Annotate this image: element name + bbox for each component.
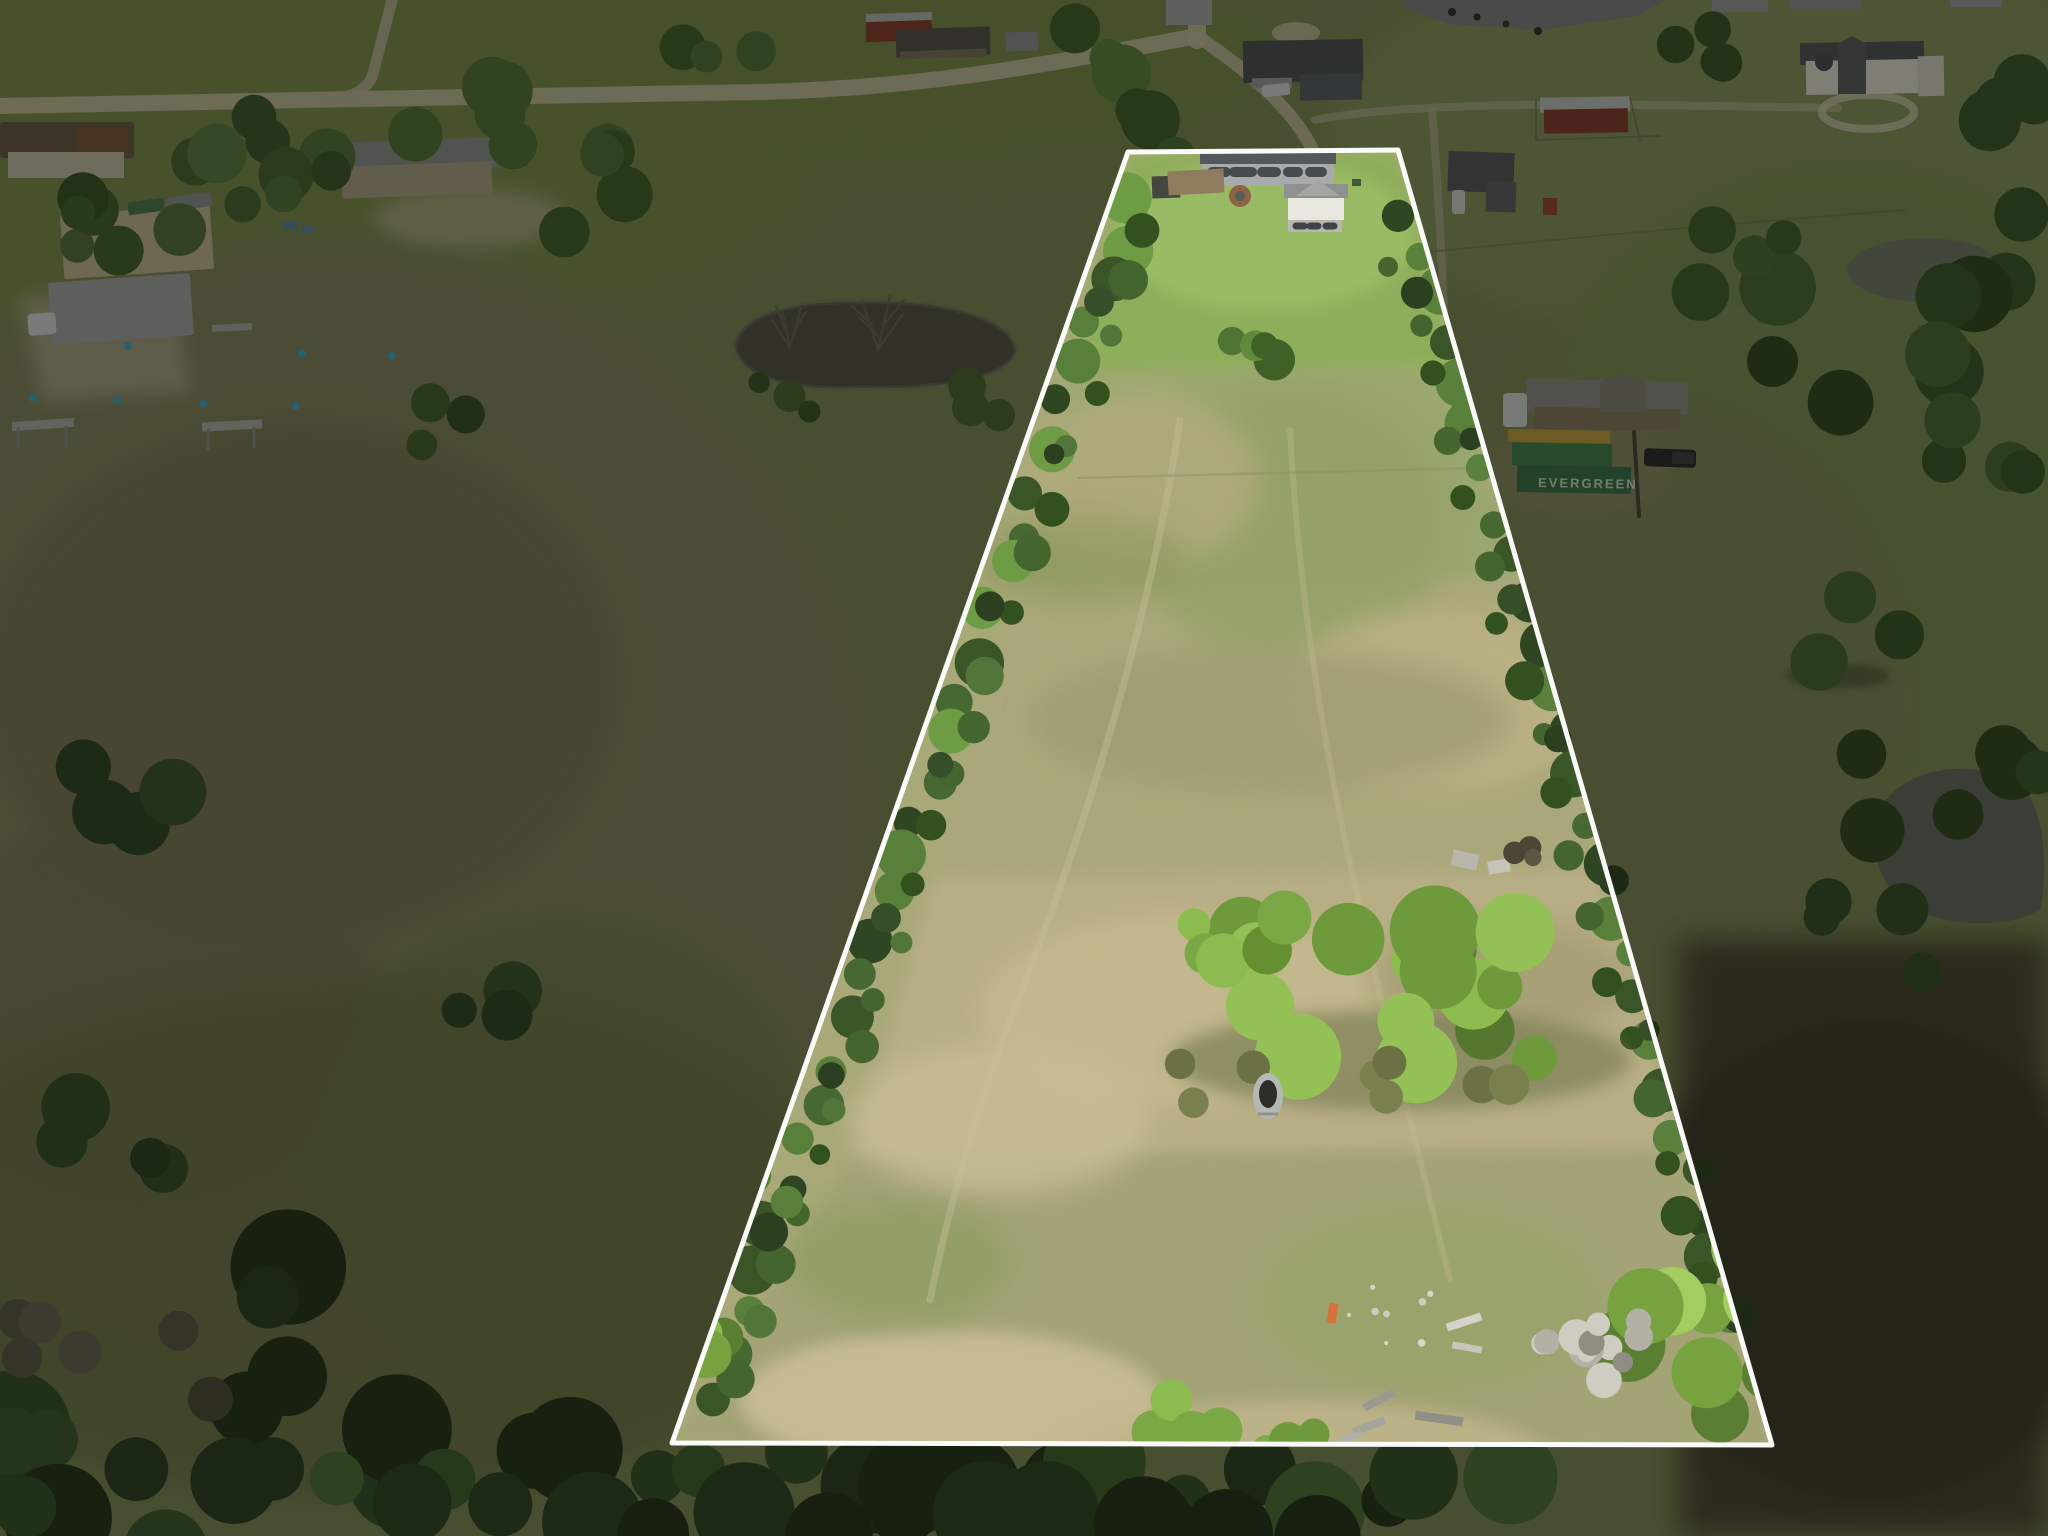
hedge-west-inside-2-tree: [966, 657, 1004, 695]
hedge-east-inside-2-tree: [1485, 612, 1508, 635]
brush-center-dark-tree: [1165, 1049, 1195, 1079]
hedge-east-inside-2-tree: [1420, 360, 1445, 385]
hedge-east-inside-2-tree: [1475, 552, 1505, 582]
hedge-west-inside-2-tree: [1100, 325, 1122, 347]
debris-specks-tree: [1427, 1291, 1433, 1297]
hedge-east-inside-tree: [1382, 200, 1414, 232]
trees-center-left-tree: [1196, 934, 1250, 988]
hedge-east-inside-2-tree: [1434, 427, 1462, 455]
debris-specks-tree: [1370, 1285, 1375, 1290]
hedge-west-outside-tree: [975, 591, 1005, 621]
hedge-west-inside-2-tree: [1014, 534, 1051, 571]
trees-center-cluster-tree: [1476, 893, 1555, 972]
hedge-east-inside-2-tree: [1410, 315, 1432, 337]
rubble-pile-tree: [1587, 1313, 1610, 1336]
hedge-west-inside-2-tree: [845, 1030, 879, 1064]
hedge-west-inside-2-tree: [1035, 492, 1070, 527]
debris-specks-tree: [1418, 1339, 1426, 1347]
rubble-pile-tree: [1534, 1329, 1560, 1355]
trees-center-cluster-tree: [1378, 993, 1435, 1050]
hedge-west-inside-2-tree: [822, 1098, 846, 1122]
hedge-west-inside-2-tree: [756, 1244, 796, 1284]
hedge-east-outside-tree: [1401, 277, 1433, 309]
hedge-west-inside-2-tree: [901, 873, 925, 897]
debris-specks-tree: [1384, 1341, 1388, 1345]
hedge-east-inside-2-tree: [1450, 485, 1475, 510]
rubble-pile-tree: [1613, 1352, 1633, 1372]
hedge-west-inside-2-tree: [916, 810, 947, 841]
trash-bin: [1352, 179, 1361, 186]
brush-center-dark-tree: [1489, 1064, 1530, 1105]
brush-center-dark-tree: [1369, 1080, 1403, 1114]
hedge-west-inside-2-tree: [958, 711, 990, 743]
hedge-west-outside-tree: [1084, 287, 1114, 317]
debris-specks-tree: [1383, 1311, 1390, 1318]
hedge-west-inside-2-tree: [861, 988, 885, 1012]
patch-tan-4: [850, 1045, 1150, 1195]
hedge-west-outside-tree: [818, 1062, 845, 1089]
hedge-west-inside-tree: [782, 1123, 814, 1155]
hedge-west-outside-tree: [871, 903, 901, 933]
hedge-west-inside-2-tree: [810, 1144, 831, 1165]
trees-se-corner-tree: [1672, 1337, 1743, 1408]
hedge-west-outside-tree: [749, 1212, 788, 1251]
debris-dark-mid-tree: [1524, 849, 1541, 866]
carport-roof: [1167, 169, 1224, 196]
hedge-west-outside-tree: [1044, 444, 1064, 464]
hedge-west-inside-2-tree: [743, 1305, 776, 1338]
hedge-east-inside-2-tree: [1576, 902, 1604, 930]
hedge-west-inside-2-tree: [891, 932, 913, 954]
trees-parcel-upper-tree: [1251, 332, 1278, 359]
fire-pit: [1235, 191, 1245, 201]
hedge-east-inside-2-tree: [1592, 967, 1622, 997]
patch-green-low-1: [785, 1200, 1015, 1324]
hedge-west-outside-tree: [927, 752, 953, 778]
tree-w-inside-single-tree: [771, 1186, 804, 1219]
hedge-east-inside-2-tree: [1554, 840, 1584, 870]
hedge-east-inside-2-tree: [1655, 1151, 1680, 1176]
debris-specks-tree: [1371, 1308, 1378, 1315]
hedge-west-inside-tree: [844, 958, 876, 990]
hedge-west-inside-2-tree: [1085, 381, 1110, 406]
aerial-photo: EVERGREEN: [0, 0, 2048, 1536]
brush-center-dark-tree: [1372, 1046, 1406, 1080]
brush-center-dark-tree: [1178, 1087, 1209, 1118]
hedge-east-inside-2-tree: [1378, 257, 1398, 277]
debris-specks-tree: [1419, 1298, 1426, 1305]
hedge-west-inside-2-tree: [1109, 260, 1149, 300]
patch-green-low-2: [1260, 1210, 1600, 1390]
trees-center-left-tree: [1257, 891, 1311, 945]
hedge-east-inside-2-tree: [1505, 661, 1544, 700]
hedge-east-inside-2-tree: [1661, 1196, 1701, 1236]
boat-interior: [1259, 1080, 1277, 1108]
debris-specks-tree: [1347, 1313, 1351, 1317]
hedge-east-inside-2-tree: [1540, 777, 1572, 809]
trees-center-cluster-tree: [1312, 903, 1385, 976]
rubble-pile-tree: [1626, 1309, 1651, 1334]
hedge-west-inside-2-tree: [1125, 213, 1160, 248]
aerial-photo-canvas: EVERGREEN: [0, 0, 2048, 1536]
